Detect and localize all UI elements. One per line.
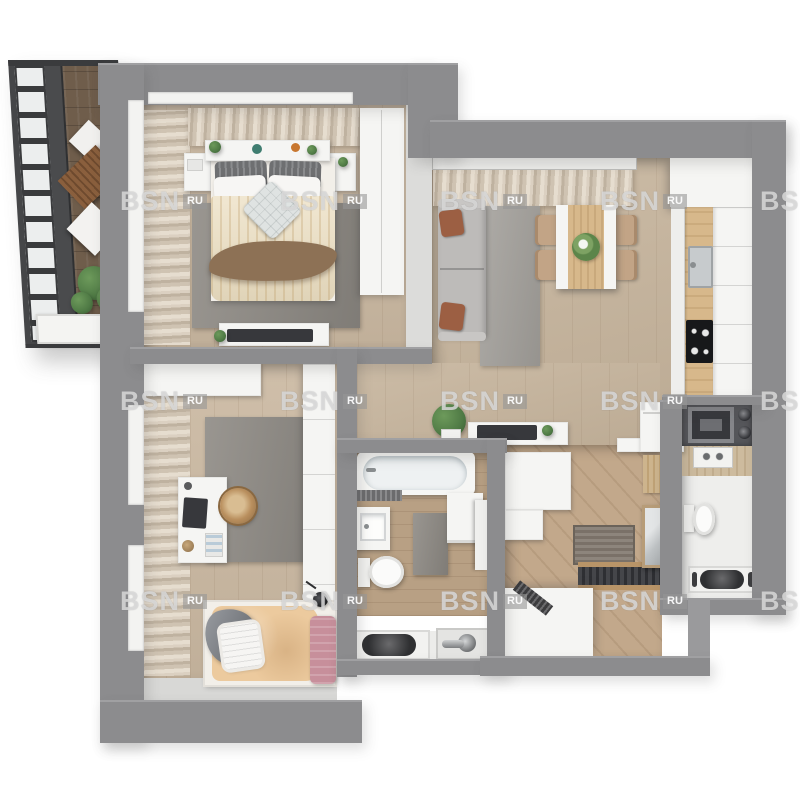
nightstand-book [188,160,202,170]
utility-sink-taps [700,452,726,461]
wall-bathroom-top [337,438,507,453]
sofa-armrest-bottom [438,332,486,341]
canister-1 [738,408,751,421]
sofa-pillow-top [438,209,464,238]
wall-entrance [480,656,710,676]
wall-kids-right [337,347,357,677]
kids-pink-blanket [310,616,336,684]
tv [227,329,313,342]
kitchen-upper-cabinets [670,158,752,207]
laundry-unit-slot-left [692,572,697,587]
sofa-pillow-bottom [438,302,465,332]
living-pelmet [432,157,637,170]
shelf-cups [252,144,262,154]
bedroom-balcony-window [128,100,144,312]
shelf-fruit [291,143,300,152]
bedroom-top-window [148,92,353,104]
wall-right [752,120,786,615]
kids-window-1 [128,405,144,505]
desk-lamp [184,482,192,490]
bedroom-wardrobe [360,108,404,295]
niche-pipe-2 [442,640,464,648]
wall-hall-utility-divider [660,400,682,605]
hall-doormat [575,527,633,563]
washbasin-faucet [364,524,369,529]
kitchen-faucet [690,262,696,268]
sofa-armrest-top [438,199,486,208]
kitchen-tall-cabinets [713,207,752,403]
bathroom-rug [413,513,448,575]
bedroom-wardrobe-seam [381,110,382,293]
wall-bathroom-right [487,438,505,660]
laundry-unit-oval [700,570,744,589]
hall-console-plant [542,425,553,436]
shelf-plant [209,141,221,153]
microwave [688,407,734,443]
kids-storage-cabinet [143,363,261,396]
shelf-succulent [307,145,317,155]
toilet-bowl [369,556,404,588]
nightstand-plant [338,157,348,167]
niche-washer-oval [362,634,416,656]
bathtub-basin [363,456,467,490]
bathtub-faucet [366,468,376,472]
kids-pillow [219,622,263,671]
bathroom-door [475,500,487,570]
sofa-seat-seam [440,268,484,270]
utility-toilet-bowl [693,503,715,535]
dining-chair-4 [614,250,637,280]
kitchen-base-front [671,207,685,403]
living-rug [480,206,540,366]
bath-mat [357,490,402,501]
tv-stand-plant [214,330,226,342]
desk-books [206,534,222,556]
bedroom-curtains-left [142,110,190,345]
wall-utility-bottom [660,598,786,615]
kitchen-counter [685,207,713,403]
kids-laptop [182,497,208,529]
kids-pendant-lamp [313,592,328,607]
cooktop [686,320,713,363]
balcony-plant-3 [70,292,93,314]
floor-plan-stage: BSNRUBSNRUBSNRUBSNRUBSNRUBSNRUBSNRUBSNRU… [0,0,800,800]
dining-chair-3 [614,215,637,245]
wall-bedroom-kids-divider [130,347,432,364]
kids-window-2 [128,545,144,651]
wall-kids-bottom [100,700,362,743]
canister-2 [738,426,751,439]
wall-living-top [430,120,786,158]
flower-bouquet [572,233,600,261]
desk-jars [182,540,194,552]
hall-built-in-cabinet [505,452,571,510]
hall-built-in-cabinet-leg [505,510,543,540]
rattan-chair [220,488,256,524]
